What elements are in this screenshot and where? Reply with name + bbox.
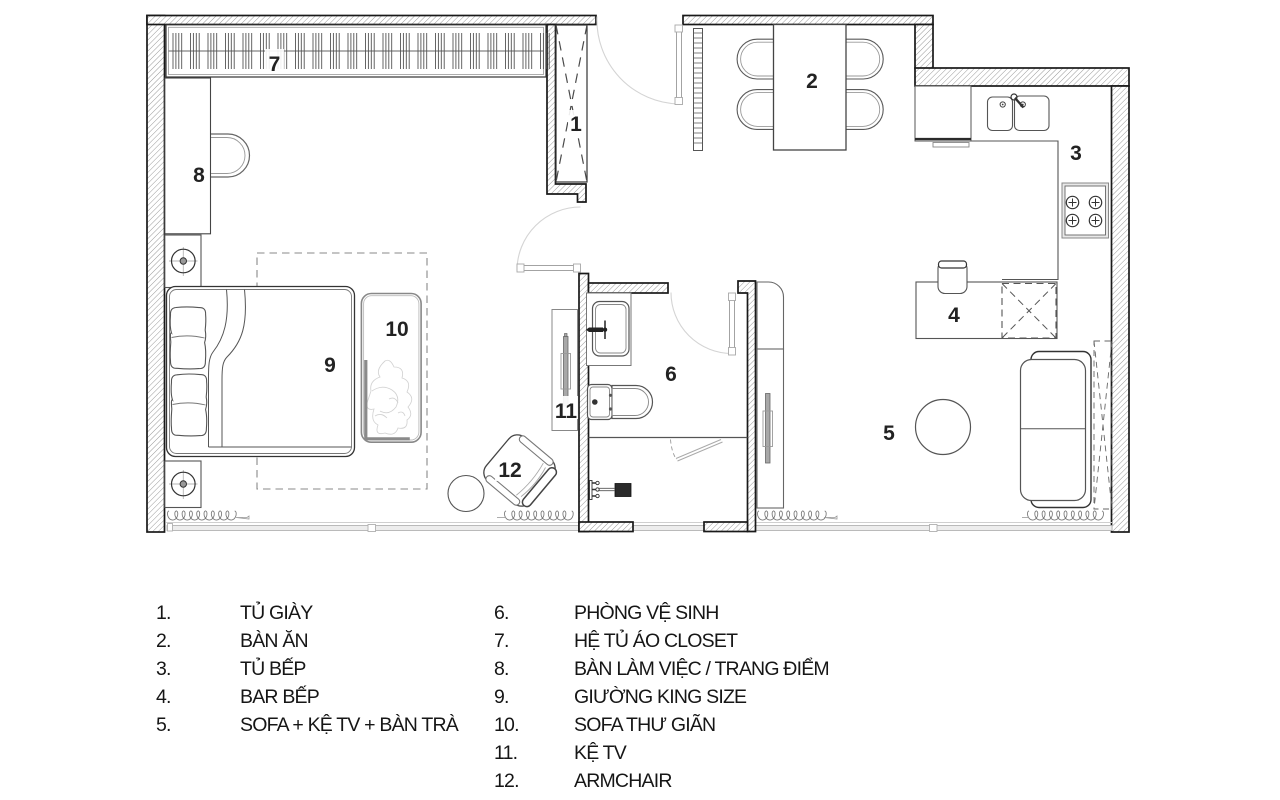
svg-text:5.: 5. xyxy=(156,714,171,736)
svg-text:KỆ TV: KỆ TV xyxy=(574,741,627,764)
svg-text:TỦ GIÀY: TỦ GIÀY xyxy=(240,600,313,624)
svg-text:TỦ BẾP: TỦ BẾP xyxy=(240,656,306,680)
svg-text:BÀN LÀM VIỆC / TRANG ĐIỂM: BÀN LÀM VIỆC / TRANG ĐIỂM xyxy=(574,657,829,680)
svg-text:SOFA THƯ GIÃN: SOFA THƯ GIÃN xyxy=(574,712,715,736)
svg-text:8: 8 xyxy=(193,164,205,187)
svg-text:HỆ TỦ ÁO CLOSET: HỆ TỦ ÁO CLOSET xyxy=(574,628,738,652)
svg-text:11: 11 xyxy=(555,400,578,423)
svg-text:10.: 10. xyxy=(494,714,519,736)
svg-text:GIƯỜNG KING SIZE: GIƯỜNG KING SIZE xyxy=(574,685,747,708)
svg-text:12: 12 xyxy=(498,459,521,482)
svg-text:3.: 3. xyxy=(156,658,171,680)
svg-text:6: 6 xyxy=(665,363,677,386)
svg-text:11.: 11. xyxy=(494,742,517,764)
svg-text:8.: 8. xyxy=(494,658,509,680)
svg-text:7.: 7. xyxy=(494,630,509,652)
svg-text:9: 9 xyxy=(324,354,336,377)
svg-text:6.: 6. xyxy=(494,602,509,624)
svg-text:4.: 4. xyxy=(156,686,171,708)
svg-text:3: 3 xyxy=(1070,142,1082,165)
svg-text:BÀN ĂN: BÀN ĂN xyxy=(240,629,308,652)
svg-text:1: 1 xyxy=(570,113,582,136)
svg-text:PHÒNG VỆ SINH: PHÒNG VỆ SINH xyxy=(574,601,719,624)
svg-text:10: 10 xyxy=(385,318,408,341)
svg-text:2.: 2. xyxy=(156,630,171,652)
svg-text:SOFA + KỆ TV + BÀN TRÀ: SOFA + KỆ TV + BÀN TRÀ xyxy=(240,713,459,736)
svg-text:4: 4 xyxy=(948,304,960,327)
svg-text:7: 7 xyxy=(269,53,281,76)
svg-text:12.: 12. xyxy=(494,770,519,792)
svg-text:5: 5 xyxy=(883,422,895,445)
svg-text:BAR BẾP: BAR BẾP xyxy=(240,685,319,708)
svg-text:1.: 1. xyxy=(156,602,171,624)
svg-text:9.: 9. xyxy=(494,686,509,708)
svg-text:ARMCHAIR: ARMCHAIR xyxy=(574,770,672,792)
svg-text:2: 2 xyxy=(806,70,818,93)
